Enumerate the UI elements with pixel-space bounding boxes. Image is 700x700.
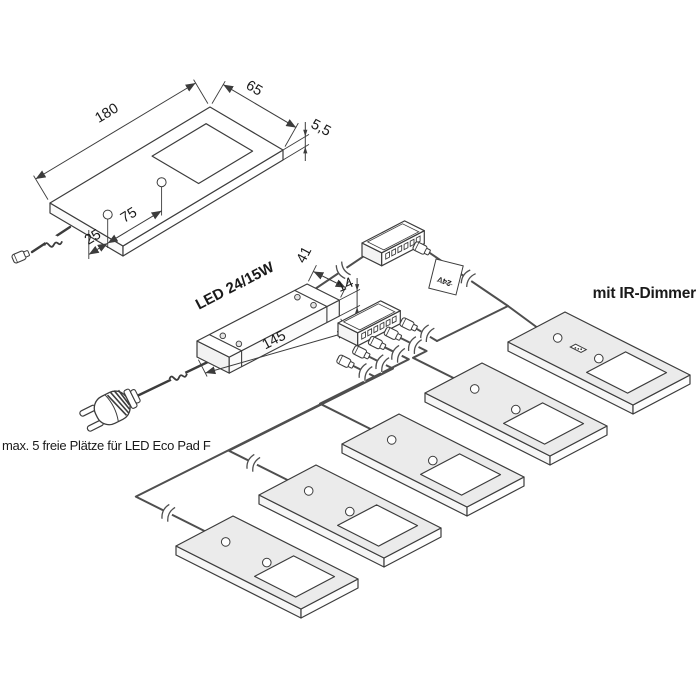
plug-1: [399, 317, 418, 333]
panel-detail-view: 180 65 5,5 25 75: [11, 78, 333, 264]
panel-plug: [11, 249, 30, 264]
note-ir-dimmer: mit IR-Dimmer: [593, 285, 697, 302]
dim-length-label: 180: [92, 100, 121, 126]
dim-thickness-label: 5,5: [308, 116, 333, 140]
distributor-block-2: [338, 301, 400, 346]
plug-2: [383, 326, 402, 342]
plug-5: [336, 354, 355, 370]
plug-4: [352, 345, 371, 361]
dim-thickness: 5,5: [283, 116, 333, 161]
mains-plug: [77, 382, 144, 436]
wiring-diagram: 180 65 5,5 25 75: [0, 0, 700, 700]
dim-width-label: 65: [243, 78, 265, 100]
driver-label: LED 24/15W: [193, 258, 278, 313]
plug-output: [412, 241, 431, 257]
note-capacity: max. 5 freie Plätze für LED Eco Pad F: [2, 438, 211, 453]
dim-driver-width-label: 41: [294, 244, 316, 266]
diagram-canvas: 180 65 5,5 25 75: [0, 0, 700, 700]
plug-3: [368, 336, 387, 352]
cable-tag: 24V: [429, 259, 463, 295]
